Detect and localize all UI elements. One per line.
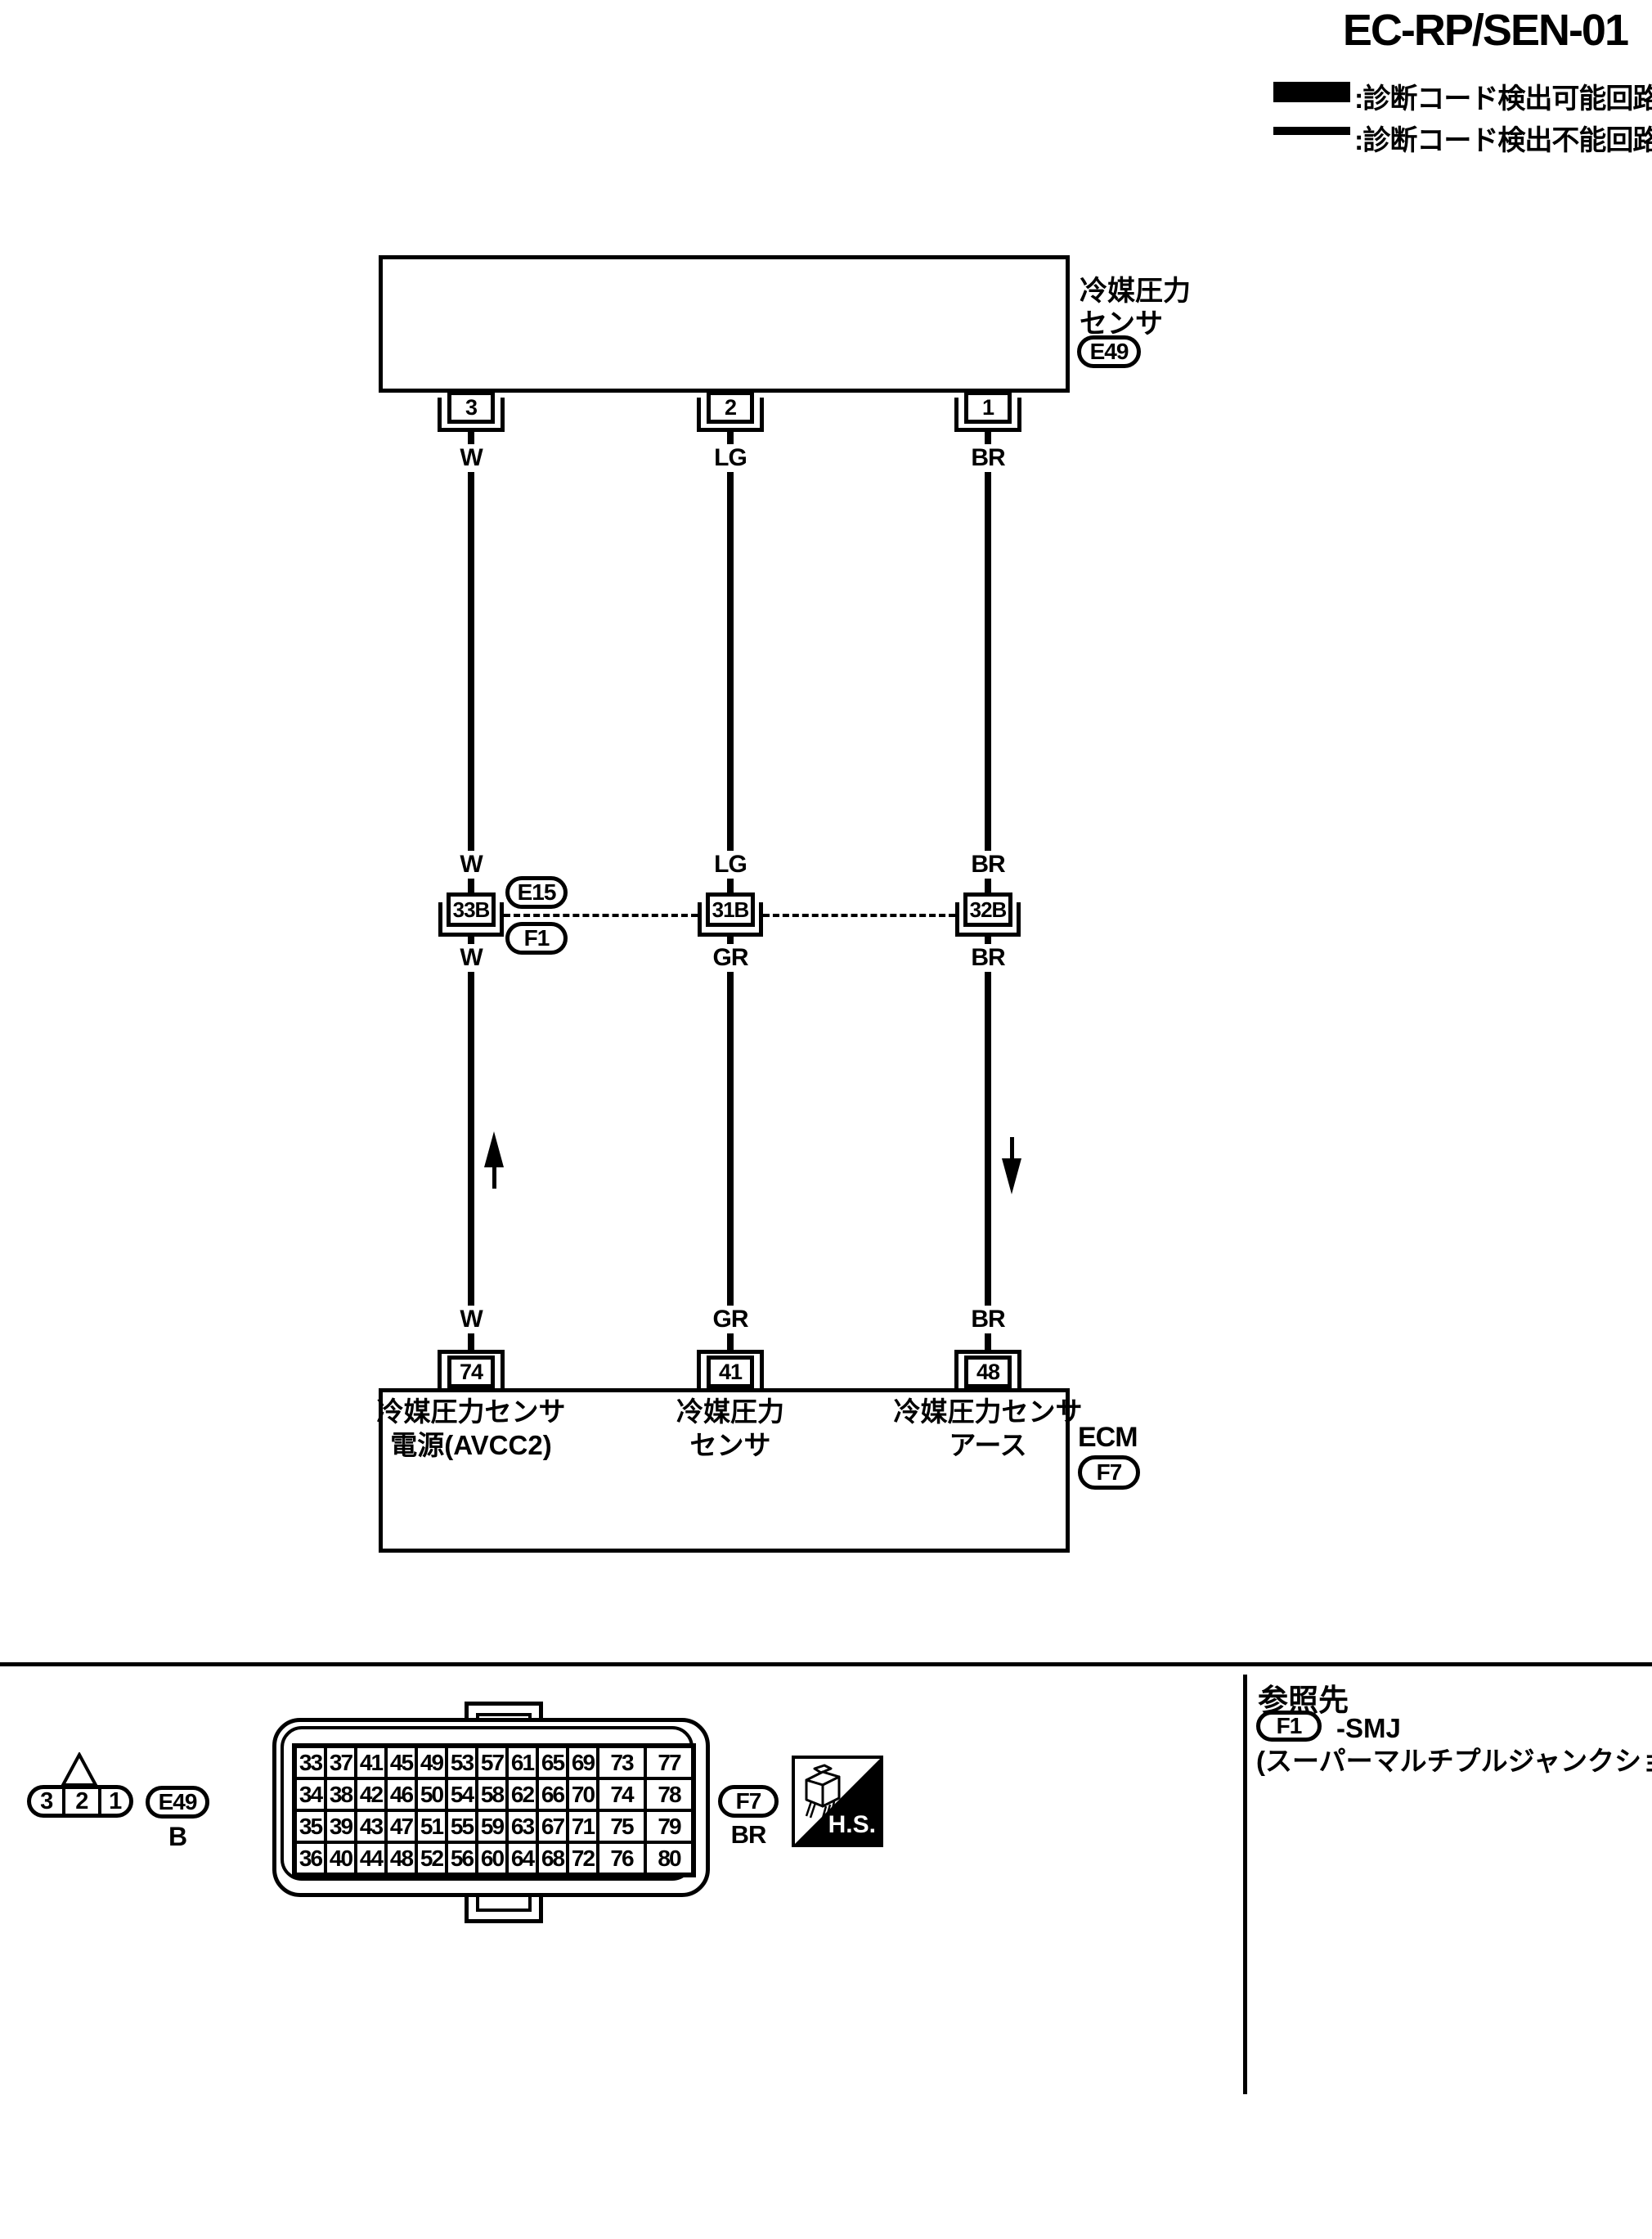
pin-cell: 79 — [645, 1810, 693, 1842]
f7-pin-grid: 33 37 41 45 49 53 57 61 65 69 73 77 34 3… — [292, 1743, 696, 1877]
pin-cell: 40 — [325, 1842, 356, 1874]
pin-cell: 64 — [507, 1842, 537, 1874]
sensor-pin-2: 2 — [707, 391, 754, 424]
pin-cell: 58 — [477, 1778, 507, 1810]
ecm-pin-function-line: アース — [841, 1428, 1135, 1462]
e49-cavity-2: 2 — [62, 1789, 101, 1814]
wire-color-label: W — [455, 1306, 487, 1333]
sensor-box — [379, 255, 1070, 393]
pin-cell: 49 — [416, 1747, 447, 1778]
pin-cell: 54 — [447, 1778, 477, 1810]
pin-cell: 56 — [447, 1842, 477, 1874]
junction-code-e15: E15 — [505, 876, 568, 909]
f7-view-code: F7 — [718, 1785, 779, 1818]
e49-view-code: E49 — [146, 1786, 209, 1819]
ecm-pin-function-line: センサ — [583, 1428, 878, 1462]
junction-pin-31b: 31B — [706, 892, 755, 927]
hs-label: H.S. — [828, 1811, 876, 1839]
wire-color-label: W — [455, 444, 487, 472]
pin-cell: 62 — [507, 1778, 537, 1810]
pin-cell: 77 — [645, 1747, 693, 1778]
pin-cell: 46 — [386, 1778, 416, 1810]
smj-dashed-link — [763, 914, 955, 917]
pin-cell: 55 — [447, 1810, 477, 1842]
reference-code-f1: F1 — [1256, 1711, 1322, 1742]
pin-cell: 76 — [598, 1842, 645, 1874]
pin-cell: 78 — [645, 1778, 693, 1810]
e49-cavity-1: 1 — [101, 1789, 129, 1814]
wire-color-label: BR — [966, 1306, 1009, 1333]
wire-color-label: W — [455, 944, 487, 972]
ecm-pin-function-line: 電源(AVCC2) — [324, 1428, 618, 1462]
wire-color-label: W — [455, 851, 487, 879]
junction-pin-33b: 33B — [447, 892, 496, 927]
ecm-pin-function-line: 冷媒圧力センサ — [841, 1395, 1135, 1428]
legend-thin-line — [1273, 127, 1350, 135]
junction-code-f1: F1 — [505, 922, 568, 955]
pin-cell: 38 — [325, 1778, 356, 1810]
pin-cell: 34 — [295, 1778, 325, 1810]
pin-cell: 63 — [507, 1810, 537, 1842]
wire-color-label: LG — [709, 444, 752, 472]
harness-side-mark: H.S. — [792, 1756, 883, 1847]
pin-cell: 50 — [416, 1778, 447, 1810]
pin-cell: 47 — [386, 1810, 416, 1842]
flow-arrow-down-icon — [1002, 1137, 1021, 1194]
ecm-pin-41: 41 — [707, 1356, 754, 1388]
pin-cell: 68 — [537, 1842, 568, 1874]
reference-note: (スーパーマルチプルジャンクション) — [1256, 1739, 1652, 1778]
pin-cell: 41 — [356, 1747, 386, 1778]
wiring-diagram-page: EC-RP/SEN-01 :診断コード検出可能回路 :診断コード検出不能回路 冷… — [0, 0, 1652, 2239]
pin-cell: 80 — [645, 1842, 693, 1874]
connector-key-triangle-icon — [61, 1752, 98, 1787]
ecm-pin-function-74: 冷媒圧力センサ 電源(AVCC2) — [324, 1395, 618, 1462]
smj-dashed-link — [504, 914, 698, 917]
pin-cell: 33 — [295, 1747, 325, 1778]
pin-cell: 35 — [295, 1810, 325, 1842]
ecm-pin-48: 48 — [964, 1356, 1012, 1388]
pin-cell: 44 — [356, 1842, 386, 1874]
pin-cell: 37 — [325, 1747, 356, 1778]
pin-cell: 39 — [325, 1810, 356, 1842]
ecm-pin-function-48: 冷媒圧力センサ アース — [841, 1395, 1135, 1462]
pin-cell: 67 — [537, 1810, 568, 1842]
ecm-pin-74: 74 — [447, 1356, 495, 1388]
ecm-pin-function-41: 冷媒圧力 センサ — [583, 1395, 878, 1462]
wire-ground-lower — [985, 937, 991, 1350]
sensor-name-line1: 冷媒圧力 — [1080, 275, 1191, 308]
f7-connector-color: BR — [718, 1820, 779, 1850]
sensor-pin-1: 1 — [964, 391, 1012, 424]
legend-label-detectable: :診断コード検出可能回路 — [1354, 76, 1652, 116]
pin-cell: 53 — [447, 1747, 477, 1778]
pin-cell: 43 — [356, 1810, 386, 1842]
pin-cell: 59 — [477, 1810, 507, 1842]
pin-cell: 69 — [568, 1747, 598, 1778]
page-title: EC-RP/SEN-01 — [1219, 5, 1627, 56]
pin-cell: 71 — [568, 1810, 598, 1842]
e49-connector-color: B — [146, 1822, 209, 1852]
sensor-connector-code: E49 — [1077, 335, 1141, 368]
flow-arrow-up-icon — [484, 1131, 504, 1189]
wire-avcc2-upper — [468, 432, 474, 892]
pin-cell: 72 — [568, 1842, 598, 1874]
legend-label-undetectable: :診断コード検出不能回路 — [1354, 118, 1652, 158]
pin-cell: 45 — [386, 1747, 416, 1778]
wire-color-label: GR — [708, 1306, 753, 1333]
ecm-pin-function-line: 冷媒圧力 — [583, 1395, 878, 1428]
pin-cell: 66 — [537, 1778, 568, 1810]
pin-cell: 51 — [416, 1810, 447, 1842]
wire-color-label: LG — [709, 851, 752, 879]
wire-avcc2-lower — [468, 937, 474, 1350]
wire-color-label: BR — [966, 851, 1009, 879]
e49-connector-view: 3 2 1 — [27, 1785, 133, 1818]
wire-signal-upper — [727, 432, 734, 892]
junction-pin-32b: 32B — [963, 892, 1012, 927]
sensor-pin-3: 3 — [447, 391, 495, 424]
footer-separator — [0, 1662, 1652, 1666]
legend-thick-line — [1273, 82, 1350, 102]
pin-cell: 75 — [598, 1810, 645, 1842]
wire-color-label: BR — [966, 444, 1009, 472]
e49-cavity-3: 3 — [31, 1789, 62, 1814]
pin-cell: 74 — [598, 1778, 645, 1810]
wire-color-label: GR — [708, 944, 753, 972]
wire-color-label: BR — [966, 944, 1009, 972]
pin-cell: 61 — [507, 1747, 537, 1778]
wire-signal-lower — [727, 937, 734, 1350]
pin-cell: 60 — [477, 1842, 507, 1874]
pin-cell: 36 — [295, 1842, 325, 1874]
pin-cell: 70 — [568, 1778, 598, 1810]
wire-ground-upper — [985, 432, 991, 892]
pin-cell: 65 — [537, 1747, 568, 1778]
ecm-pin-function-line: 冷媒圧力センサ — [324, 1395, 618, 1428]
pin-cell: 42 — [356, 1778, 386, 1810]
pin-cell: 48 — [386, 1842, 416, 1874]
pin-cell: 52 — [416, 1842, 447, 1874]
sensor-name: 冷媒圧力 センサ — [1080, 275, 1191, 340]
reference-divider — [1243, 1675, 1247, 2094]
pin-cell: 57 — [477, 1747, 507, 1778]
pin-cell: 73 — [598, 1747, 645, 1778]
